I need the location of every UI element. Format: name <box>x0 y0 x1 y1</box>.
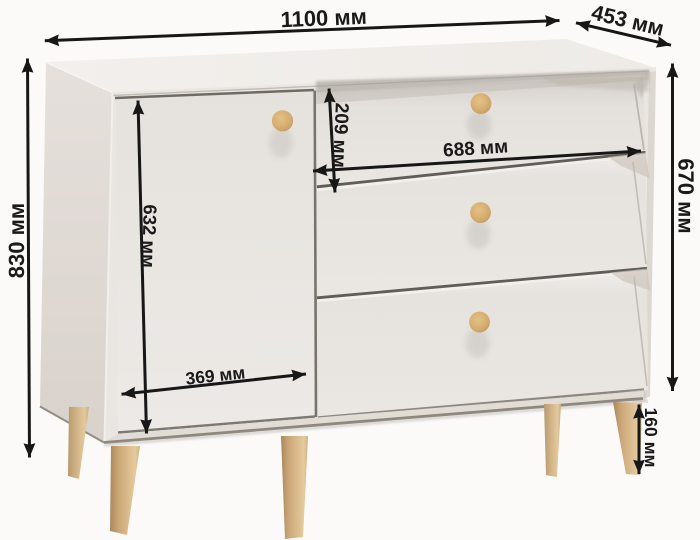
svg-text:632 мм: 632 мм <box>138 204 161 268</box>
svg-text:1100 мм: 1100 мм <box>280 4 367 32</box>
svg-text:830 мм: 830 мм <box>4 203 29 278</box>
svg-text:160 мм: 160 мм <box>641 408 661 468</box>
svg-text:209 мм: 209 мм <box>328 102 352 168</box>
svg-text:688 мм: 688 мм <box>442 136 508 161</box>
svg-text:670 мм: 670 мм <box>674 158 699 233</box>
